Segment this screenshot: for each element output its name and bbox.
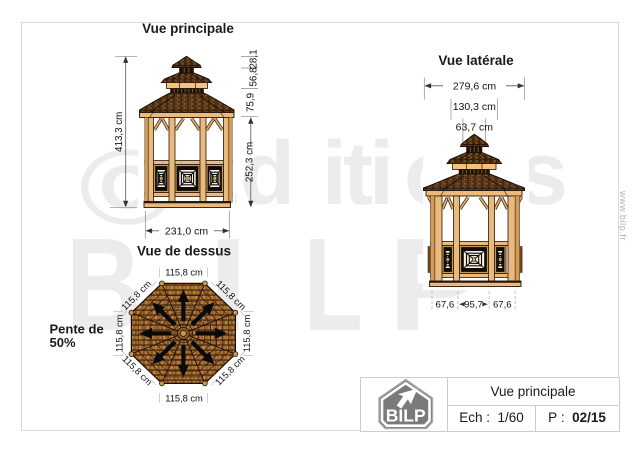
svg-text:413,3 cm: 413,3 cm [114, 112, 125, 152]
svg-text:115,8 cm: 115,8 cm [114, 314, 124, 352]
svg-text:252,3 cm: 252,3 cm [244, 142, 255, 182]
svg-text:56,8: 56,8 [248, 67, 259, 87]
svg-text:Vue latérale: Vue latérale [438, 53, 514, 68]
svg-text:130,3 cm: 130,3 cm [453, 101, 496, 113]
svg-text:231,0 cm: 231,0 cm [165, 226, 208, 238]
svg-text:BILP: BILP [386, 406, 426, 426]
svg-text:75,9: 75,9 [246, 93, 257, 112]
svg-text:67,6: 67,6 [493, 300, 512, 311]
svg-text:115,8 cm: 115,8 cm [165, 394, 203, 404]
svg-text:Vue principale: Vue principale [142, 21, 234, 36]
svg-text:Vue de dessus: Vue de dessus [137, 244, 231, 259]
svg-text:28,1: 28,1 [248, 49, 259, 68]
svg-text:115,8 cm: 115,8 cm [165, 268, 203, 278]
svg-text:95,7: 95,7 [464, 300, 483, 311]
svg-text:279,6 cm: 279,6 cm [453, 80, 496, 92]
svg-text:67,6: 67,6 [436, 300, 455, 311]
svg-text:115,8 cm: 115,8 cm [242, 314, 252, 352]
svg-text:50%: 50% [50, 335, 76, 350]
svg-text:63,7 cm: 63,7 cm [456, 122, 494, 134]
